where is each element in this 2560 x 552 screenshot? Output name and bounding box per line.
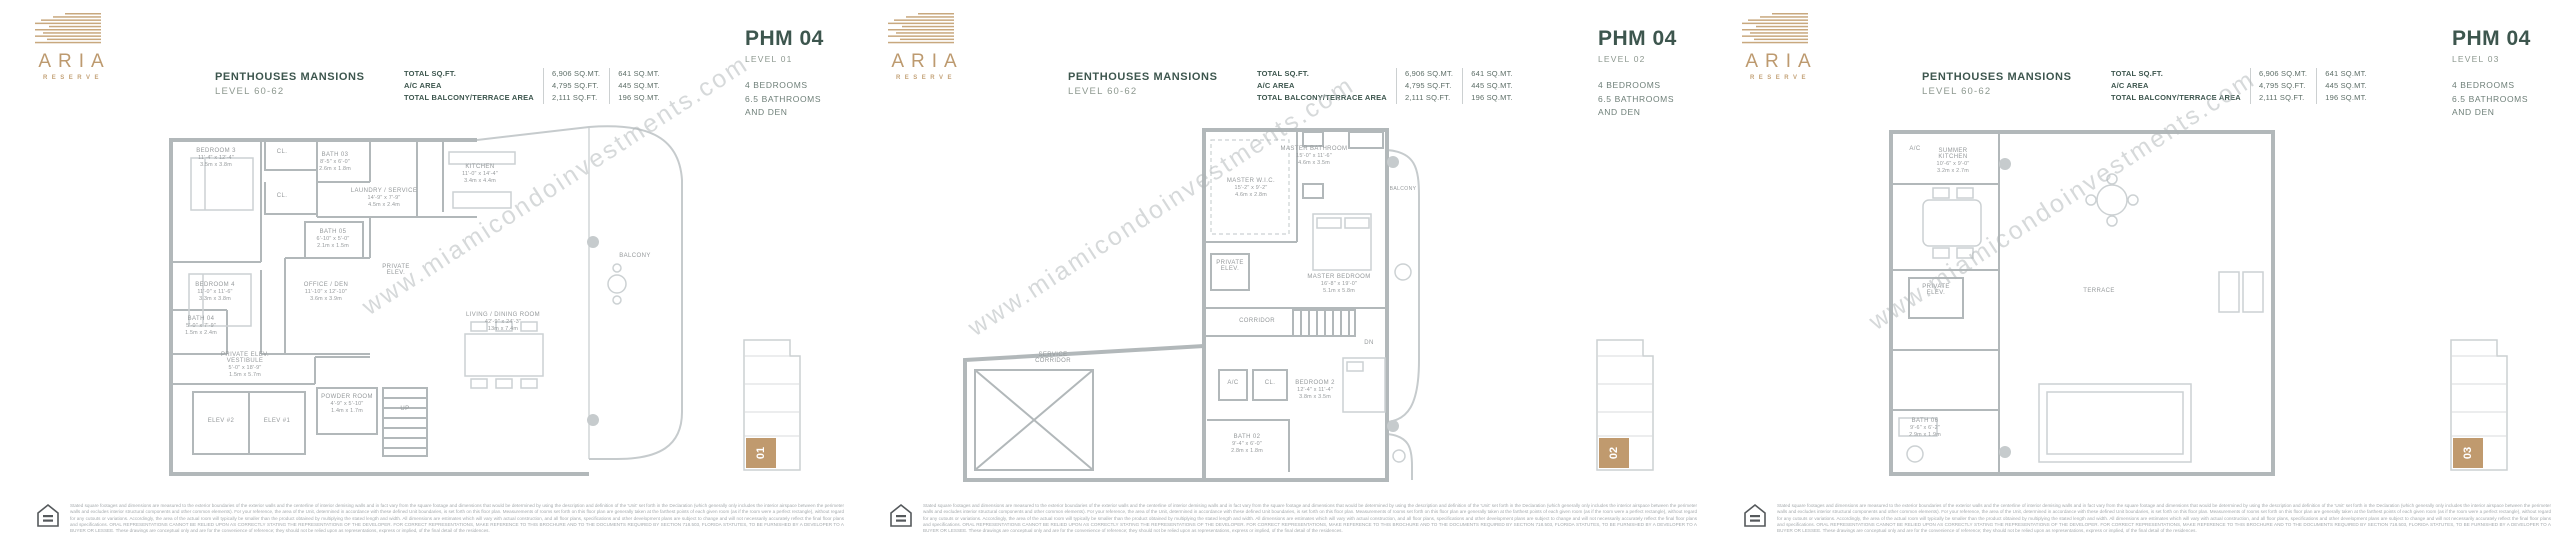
stat-value: 2,111 SQ.FT. <box>552 92 600 104</box>
stat-value: 6,906 SQ.MT. <box>552 68 600 80</box>
unit-header: PHM 04 LEVEL 03 4 BEDROOMS 6.5 BATHROOMS… <box>2452 27 2531 120</box>
stats-imperial-column: 6,906 SQ.MT. 4,795 SQ.FT. 2,111 SQ.FT. <box>1396 68 1453 104</box>
room-dims-m: 3.6m x 3.9m <box>304 296 348 302</box>
room-dims-m: 1.5m x 5.7m <box>217 372 273 378</box>
room-label-bedroom2: BEDROOM 2 12'-4" x 11'-4" 3.8m x 3.5m <box>1295 380 1335 400</box>
room-label-closet: CL. <box>277 193 288 199</box>
stat-value: 4,795 SQ.FT. <box>1405 80 1453 92</box>
room-dims-m: 2.1m x 1.5m <box>317 243 350 249</box>
room-label-bedroom4: BEDROOM 4 11'-0" x 11'-6" 3.3m x 3.8m <box>195 282 235 302</box>
unit-level: LEVEL 01 <box>745 54 824 64</box>
room-dims-ft: 4'-9" x 5'-10" <box>321 401 373 407</box>
stat-value: 445 SQ.MT. <box>2325 80 2367 92</box>
room-label-bath04: BATH 04 5'-0" x 7'-9" 1.5m x 2.4m <box>185 316 217 336</box>
room-dims-ft: 8'-5" x 6'-0" <box>319 159 351 165</box>
room-label-bath03: BATH 03 8'-5" x 6'-0" 2.6m x 1.8m <box>319 152 351 172</box>
room-label-terrace: TERRACE <box>2083 288 2114 294</box>
room-label-kitchen: KITCHEN 11'-0" x 14'-4" 3.4m x 4.4m <box>462 164 498 184</box>
brand-name: ARIA <box>881 51 967 73</box>
aria-reserve-logo: ARIA RESERVE <box>1735 13 1821 81</box>
equal-housing-icon <box>36 503 60 529</box>
stat-value: 641 SQ.MT. <box>1471 68 1513 80</box>
room-label-elev2: ELEV #2 <box>208 418 234 424</box>
room-name: TERRACE <box>2083 288 2114 294</box>
room-dims-m: 3.8m x 3.5m <box>1295 394 1335 400</box>
stats-metric-column: 641 SQ.MT. 445 SQ.MT. 196 SQ.MT. <box>1462 68 1513 104</box>
room-name: UP <box>400 406 409 412</box>
collection-title: PENTHOUSES MANSIONS <box>1922 71 2072 83</box>
stat-value: 4,795 SQ.FT. <box>2259 80 2307 92</box>
stat-label: TOTAL SQ.FT. <box>2111 68 2241 80</box>
logo-lines-motif <box>28 13 114 45</box>
room-label-stairs-dn: DN <box>1364 340 1373 346</box>
room-dims-ft: 11'-4" x 12'-4" <box>196 155 236 161</box>
room-dims-m: 3.5m x 3.8m <box>196 162 236 168</box>
room-name: BATH 02 <box>1231 434 1263 440</box>
room-name: A/C <box>1227 380 1238 386</box>
keyplan-unit-number: 01 <box>755 447 767 459</box>
unit-features: 4 BEDROOMS 6.5 BATHROOMS AND DEN <box>2452 79 2531 120</box>
room-label-bath05: BATH 05 6'-10" x 5'-0" 2.1m x 1.5m <box>317 229 350 249</box>
room-name: A/C <box>1909 146 1920 152</box>
room-label-closet: CL. <box>1265 380 1276 386</box>
brand-name: ARIA <box>28 51 114 73</box>
room-dims-m: 4.6m x 2.8m <box>1227 192 1275 198</box>
room-dims-ft: 11'-0" x 11'-6" <box>195 289 235 295</box>
disclaimer-text: Stated square footages and dimensions ar… <box>923 503 1697 534</box>
stat-label: A/C AREA <box>404 80 534 92</box>
brand-name: ARIA <box>1735 51 1821 73</box>
keyplan-floor-lines <box>744 356 800 436</box>
room-dims-m: 5.1m x 5.8m <box>1307 288 1370 294</box>
room-label-master-bedroom: MASTER BEDROOM 16'-8" x 19'-0" 5.1m x 5.… <box>1307 274 1370 294</box>
room-label-corridor: CORRIDOR <box>1239 318 1275 324</box>
building-key-plan: 03 <box>2419 336 2529 484</box>
unit-name: PHM 04 <box>2452 27 2531 51</box>
unit-header: PHM 04 LEVEL 02 4 BEDROOMS 6.5 BATHROOMS… <box>1598 27 1677 120</box>
stat-value: 445 SQ.MT. <box>1471 80 1513 92</box>
feature: 6.5 BATHROOMS <box>1598 93 1677 107</box>
room-label-office-den: OFFICE / DEN 11'-10" x 12'-10" 3.6m x 3.… <box>304 282 348 302</box>
room-name: MASTER W.I.C. <box>1227 178 1275 184</box>
room-dims-m: 2.8m x 1.8m <box>1231 448 1263 454</box>
room-label-service-corridor: SERVICE CORRIDOR <box>1025 352 1081 364</box>
panel-level-02: ARIA RESERVE PENTHOUSES MANSIONS LEVEL 6… <box>853 0 1706 552</box>
stat-value: 641 SQ.MT. <box>2325 68 2367 80</box>
room-label-ac: A/C <box>1909 146 1920 152</box>
logo-lines-motif <box>1735 13 1821 45</box>
collection-title: PENTHOUSES MANSIONS <box>1068 71 1218 83</box>
brand-subname: RESERVE <box>1735 75 1821 81</box>
feature: 6.5 BATHROOMS <box>2452 93 2531 107</box>
collection-levels: LEVEL 60-62 <box>1068 86 1218 97</box>
room-dims-ft: 5'-0" x 18'-9" <box>217 365 273 371</box>
unit-features: 4 BEDROOMS 6.5 BATHROOMS AND DEN <box>745 79 824 120</box>
room-label-ac: A/C <box>1227 380 1238 386</box>
disclaimer-block: Stated square footages and dimensions ar… <box>889 503 1697 534</box>
room-name: ELEV #2 <box>208 418 234 424</box>
unit-level: LEVEL 03 <box>2452 54 2531 64</box>
room-name: MASTER BATHROOM <box>1281 146 1348 152</box>
room-dims-m: 2.9m x 1.9m <box>1909 432 1941 438</box>
room-label-balcony: BALCONY <box>1390 186 1417 192</box>
feature: AND DEN <box>2452 106 2531 120</box>
room-name: PRIVATE ELEV. <box>1212 260 1248 272</box>
logo-lines-motif <box>881 13 967 45</box>
room-name: BATH 06 <box>1909 418 1941 424</box>
room-label-private-elev: PRIVATE ELEV. <box>1212 260 1248 272</box>
room-name: POWDER ROOM <box>321 394 373 400</box>
unit-header: PHM 04 LEVEL 01 4 BEDROOMS 6.5 BATHROOMS… <box>745 27 824 120</box>
room-name: BATH 03 <box>319 152 351 158</box>
room-name: BALCONY <box>1390 186 1417 192</box>
stat-label: TOTAL BALCONY/TERRACE AREA <box>404 92 534 104</box>
room-name: OFFICE / DEN <box>304 282 348 288</box>
building-key-plan: 01 <box>712 336 822 484</box>
floor-plan-level-03: A/C SUMMER KITCHEN 10'-6" x 9'-0" 3.2m x… <box>1887 122 2287 482</box>
stats-labels: TOTAL SQ.FT. A/C AREA TOTAL BALCONY/TERR… <box>404 68 534 104</box>
room-name: BEDROOM 4 <box>195 282 235 288</box>
disclaimer-text: Stated square footages and dimensions ar… <box>70 503 844 534</box>
room-dims-m: 3.2m x 2.7m <box>1925 168 1981 174</box>
room-label-bath02: BATH 02 9'-4" x 6'-0" 2.8m x 1.8m <box>1231 434 1263 454</box>
room-dims-ft: 42'-9" x 24'-3" <box>466 319 540 325</box>
brochure-page: { "watermark": "www.miamicondoinvestment… <box>0 0 2560 552</box>
room-label-powder-room: POWDER ROOM 4'-9" x 5'-10" 1.4m x 1.7m <box>321 394 373 414</box>
area-stats: TOTAL SQ.FT. A/C AREA TOTAL BALCONY/TERR… <box>1257 68 1513 104</box>
panel-level-03: ARIA RESERVE PENTHOUSES MANSIONS LEVEL 6… <box>1707 0 2560 552</box>
brand-subname: RESERVE <box>28 75 114 81</box>
room-dims-m: 4.6m x 3.5m <box>1281 160 1348 166</box>
stats-metric-column: 641 SQ.MT. 445 SQ.MT. 196 SQ.MT. <box>609 68 660 104</box>
room-dims-ft: 16'-8" x 19'-0" <box>1307 281 1370 287</box>
stat-value: 196 SQ.MT. <box>618 92 660 104</box>
room-dims-m: 13m x 7.4m <box>466 326 540 332</box>
room-label-stairs-up: UP <box>400 406 409 412</box>
collection-levels: LEVEL 60-62 <box>1922 86 2072 97</box>
room-name: CORRIDOR <box>1239 318 1275 324</box>
feature: 4 BEDROOMS <box>2452 79 2531 93</box>
room-name: SERVICE CORRIDOR <box>1025 352 1081 364</box>
keyplan-unit-number: 02 <box>1608 447 1620 459</box>
stats-metric-column: 641 SQ.MT. 445 SQ.MT. 196 SQ.MT. <box>2316 68 2367 104</box>
room-dims-ft: 15'-0" x 11'-6" <box>1281 153 1348 159</box>
feature: AND DEN <box>1598 106 1677 120</box>
room-name: BEDROOM 2 <box>1295 380 1335 386</box>
room-label-balcony: BALCONY <box>619 253 650 259</box>
panel-title-block: PENTHOUSES MANSIONS LEVEL 60-62 <box>1068 71 1218 97</box>
keyplan-unit-number: 03 <box>2462 447 2474 459</box>
room-dims-m: 1.4m x 1.7m <box>321 408 373 414</box>
disclaimer-block: Stated square footages and dimensions ar… <box>1743 503 2551 534</box>
stat-value: 6,906 SQ.MT. <box>2259 68 2307 80</box>
room-name: LAUNDRY / SERVICE <box>351 188 418 194</box>
room-dims-ft: 14'-9" x 7'-9" <box>351 195 418 201</box>
room-name: LIVING / DINING ROOM <box>466 312 540 318</box>
room-name: KITCHEN <box>462 164 498 170</box>
room-label-laundry: LAUNDRY / SERVICE 14'-9" x 7'-9" 4.5m x … <box>351 188 418 208</box>
stat-value: 6,906 SQ.MT. <box>1405 68 1453 80</box>
room-dims-m: 3.3m x 3.8m <box>195 296 235 302</box>
room-dims-m: 4.5m x 2.4m <box>351 202 418 208</box>
room-name: PRIVATE ELEV. VESTIBULE <box>217 352 273 364</box>
room-dims-ft: 12'-4" x 11'-4" <box>1295 387 1335 393</box>
room-dims-m: 3.4m x 4.4m <box>462 178 498 184</box>
room-dims-ft: 6'-10" x 5'-0" <box>317 236 350 242</box>
stat-value: 4,795 SQ.FT. <box>552 80 600 92</box>
building-key-plan: 02 <box>1565 336 1675 484</box>
room-name: BEDROOM 3 <box>196 148 236 154</box>
stat-value: 641 SQ.MT. <box>618 68 660 80</box>
disclaimer-text: Stated square footages and dimensions ar… <box>1777 503 2551 534</box>
stat-value: 196 SQ.MT. <box>1471 92 1513 104</box>
room-dims-ft: 9'-4" x 6'-0" <box>1231 441 1263 447</box>
stat-value: 196 SQ.MT. <box>2325 92 2367 104</box>
feature: AND DEN <box>745 106 824 120</box>
panel-title-block: PENTHOUSES MANSIONS LEVEL 60-62 <box>215 71 365 97</box>
collection-title: PENTHOUSES MANSIONS <box>215 71 365 83</box>
room-name: MASTER BEDROOM <box>1307 274 1370 280</box>
room-dims-ft: 15'-2" x 9'-2" <box>1227 185 1275 191</box>
room-dims-m: 2.6m x 1.8m <box>319 166 351 172</box>
room-name: BATH 04 <box>185 316 217 322</box>
unit-name: PHM 04 <box>745 27 824 51</box>
room-label-bath06: BATH 06 9'-6" x 6'-2" 2.9m x 1.9m <box>1909 418 1941 438</box>
floor-plan-level-02: MASTER BATHROOM 15'-0" x 11'-6" 4.6m x 3… <box>957 122 1427 482</box>
keyplan-floor-lines <box>1597 356 1653 436</box>
panel-level-01: ARIA RESERVE PENTHOUSES MANSIONS LEVEL 6… <box>0 0 853 552</box>
room-label-master-bathroom: MASTER BATHROOM 15'-0" x 11'-6" 4.6m x 3… <box>1281 146 1348 166</box>
equal-housing-icon <box>889 503 913 529</box>
room-label-master-wic: MASTER W.I.C. 15'-2" x 9'-2" 4.6m x 2.8m <box>1227 178 1275 198</box>
floor-plan-level-01: BEDROOM 3 11'-4" x 12'-4" 3.5m x 3.8m CL… <box>165 122 705 482</box>
room-dims-m: 1.5m x 2.4m <box>185 330 217 336</box>
stat-label: TOTAL SQ.FT. <box>404 68 534 80</box>
panel-title-block: PENTHOUSES MANSIONS LEVEL 60-62 <box>1922 71 2072 97</box>
floor-plan-drawing <box>165 122 705 482</box>
unit-name: PHM 04 <box>1598 27 1677 51</box>
room-dims-ft: 5'-0" x 7'-9" <box>185 323 217 329</box>
room-dims-ft: 11'-0" x 14'-4" <box>462 171 498 177</box>
stat-label: TOTAL SQ.FT. <box>1257 68 1387 80</box>
room-dims-ft: 11'-10" x 12'-10" <box>304 289 348 295</box>
room-name: BATH 05 <box>317 229 350 235</box>
room-label-bedroom3: BEDROOM 3 11'-4" x 12'-4" 3.5m x 3.8m <box>196 148 236 168</box>
room-dims-ft: 10'-6" x 9'-0" <box>1925 161 1981 167</box>
room-name: ELEV #1 <box>264 418 290 424</box>
room-label-summer-kitchen: SUMMER KITCHEN 10'-6" x 9'-0" 3.2m x 2.7… <box>1925 148 1981 174</box>
area-stats: TOTAL SQ.FT. A/C AREA TOTAL BALCONY/TERR… <box>404 68 660 104</box>
stat-value: 2,111 SQ.FT. <box>1405 92 1453 104</box>
feature: 6.5 BATHROOMS <box>745 93 824 107</box>
room-name: BALCONY <box>619 253 650 259</box>
disclaimer-block: Stated square footages and dimensions ar… <box>36 503 844 534</box>
room-dims-ft: 9'-6" x 6'-2" <box>1909 425 1941 431</box>
room-name: CL. <box>277 149 288 155</box>
room-label-living-dining: LIVING / DINING ROOM 42'-9" x 24'-3" 13m… <box>466 312 540 332</box>
room-name: CL. <box>1265 380 1276 386</box>
room-label-closet: CL. <box>277 149 288 155</box>
room-name: SUMMER KITCHEN <box>1925 148 1981 160</box>
aria-reserve-logo: ARIA RESERVE <box>28 13 114 81</box>
equal-housing-icon <box>1743 503 1767 529</box>
keyplan-floor-lines <box>2451 356 2507 436</box>
stat-value: 445 SQ.MT. <box>618 80 660 92</box>
unit-features: 4 BEDROOMS 6.5 BATHROOMS AND DEN <box>1598 79 1677 120</box>
stats-imperial-column: 6,906 SQ.MT. 4,795 SQ.FT. 2,111 SQ.FT. <box>543 68 600 104</box>
room-label-private-elev-vestibule: PRIVATE ELEV. VESTIBULE 5'-0" x 18'-9" 1… <box>217 352 273 378</box>
structural-columns <box>1999 158 2011 458</box>
room-label-elev1: ELEV #1 <box>264 418 290 424</box>
feature: 4 BEDROOMS <box>745 79 824 93</box>
collection-levels: LEVEL 60-62 <box>215 86 365 97</box>
stat-value: 2,111 SQ.FT. <box>2259 92 2307 104</box>
feature: 4 BEDROOMS <box>1598 79 1677 93</box>
room-name: CL. <box>277 193 288 199</box>
aria-reserve-logo: ARIA RESERVE <box>881 13 967 81</box>
brand-subname: RESERVE <box>881 75 967 81</box>
room-name: DN <box>1364 340 1373 346</box>
unit-level: LEVEL 02 <box>1598 54 1677 64</box>
